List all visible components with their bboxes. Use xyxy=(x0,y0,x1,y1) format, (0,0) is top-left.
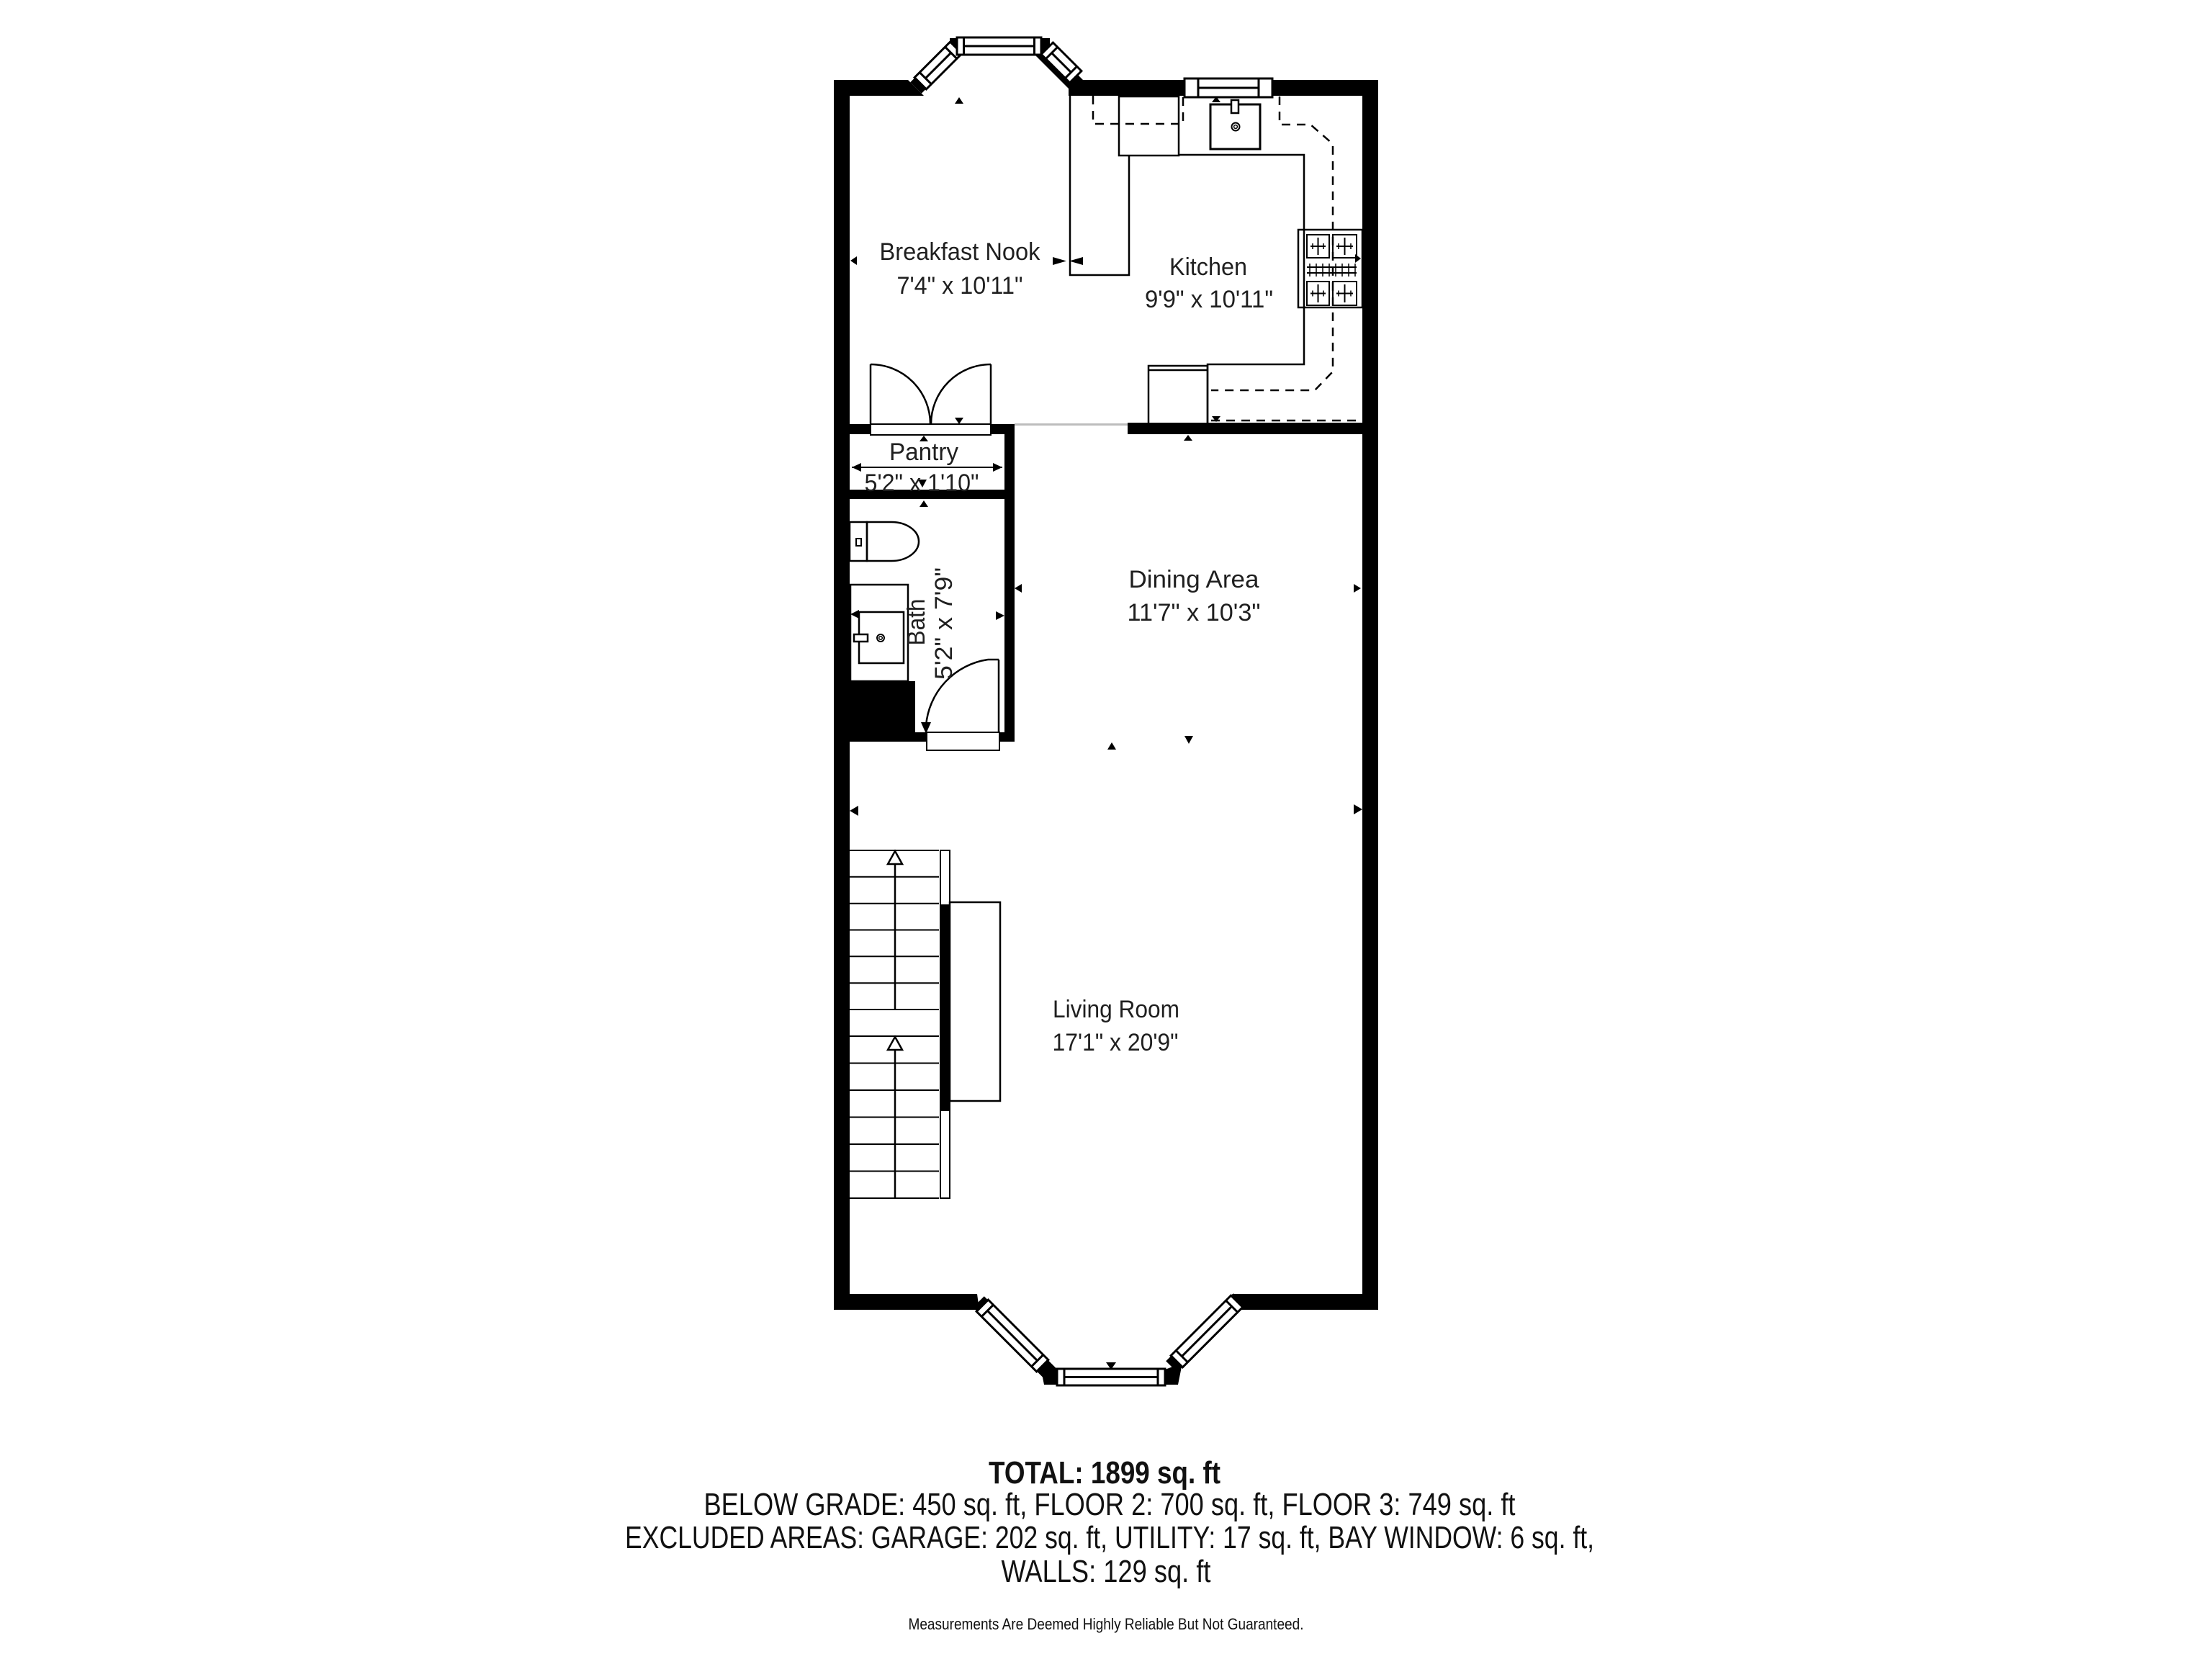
svg-text:Measurements Are Deemed Highly: Measurements Are Deemed Highly Reliable … xyxy=(909,1615,1304,1633)
svg-text:Bath: Bath xyxy=(903,599,930,646)
svg-text:BELOW GRADE: 450 sq. ft, FLOOR: BELOW GRADE: 450 sq. ft, FLOOR 2: 700 sq… xyxy=(704,1487,1516,1522)
svg-text:5'2" x 7'9": 5'2" x 7'9" xyxy=(930,567,958,680)
svg-text:EXCLUDED AREAS: GARAGE: 202 sq: EXCLUDED AREAS: GARAGE: 202 sq. ft, UTIL… xyxy=(625,1520,1594,1555)
svg-text:11'7" x 10'3": 11'7" x 10'3" xyxy=(1128,599,1261,626)
svg-text:9'9" x 10'11": 9'9" x 10'11" xyxy=(1145,286,1273,313)
svg-text:Pantry: Pantry xyxy=(889,439,958,466)
svg-text:7'4" x 10'11": 7'4" x 10'11" xyxy=(897,272,1023,300)
svg-text:17'1" x 20'9": 17'1" x 20'9" xyxy=(1053,1029,1179,1056)
svg-text:TOTAL: 1899 sq. ft: TOTAL: 1899 sq. ft xyxy=(989,1455,1220,1491)
svg-text:Breakfast Nook: Breakfast Nook xyxy=(880,238,1041,266)
svg-text:Kitchen: Kitchen xyxy=(1169,253,1247,281)
svg-text:Dining Area: Dining Area xyxy=(1129,566,1259,593)
svg-text:5'2" x 1'10": 5'2" x 1'10" xyxy=(865,469,979,497)
svg-text:WALLS: 129 sq. ft: WALLS: 129 sq. ft xyxy=(1002,1554,1211,1589)
svg-text:Living Room: Living Room xyxy=(1053,996,1179,1023)
